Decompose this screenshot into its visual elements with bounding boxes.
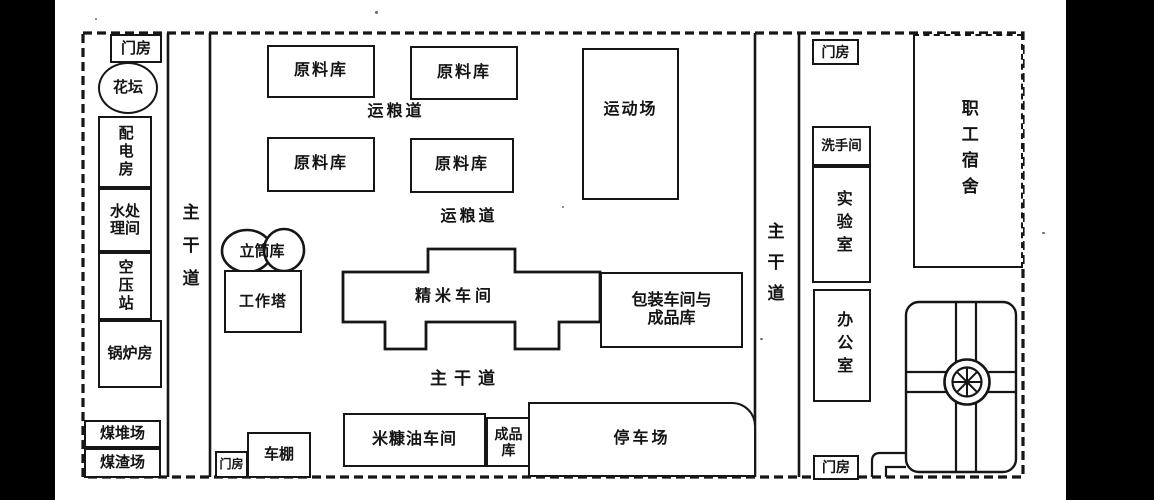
sports-field-label: 运动场: [603, 101, 657, 119]
sports-field: 运动场: [582, 48, 679, 200]
boiler-room-label: 锅炉房: [107, 345, 152, 362]
water-treatment-room: 水处理间: [98, 188, 152, 252]
gatehouse-northwest-label: 门房: [121, 40, 151, 57]
parking-lot-label: 停车场: [613, 430, 670, 448]
scan-speck: [760, 338, 763, 340]
scan-speck: [1042, 232, 1045, 234]
gatehouse-southeast: 门房: [813, 455, 859, 480]
raw-material-warehouse-nw-label: 原料库: [294, 62, 348, 80]
garden-elbow-outer: [872, 453, 906, 477]
main-road-east-label: 主干道: [764, 222, 784, 315]
gatehouse-northeast: 门房: [812, 39, 859, 65]
bike-shed: 车棚: [247, 432, 311, 478]
main-road-center-label: 主干道: [418, 369, 514, 389]
raw-material-warehouse-nw: 原料库: [267, 45, 375, 98]
raw-material-warehouse-ne-label: 原料库: [437, 64, 491, 82]
air-compressor-station-label: 空压站: [116, 259, 133, 313]
washroom: 洗手间: [812, 126, 871, 166]
water-treatment-room-label: 水处理间: [107, 203, 143, 238]
packaging-and-finished-goods-label: 包装车间与成品库: [626, 292, 718, 329]
staff-dormitory-label: 职工宿舍: [958, 99, 978, 203]
power-distribution-room: 配电房: [98, 116, 152, 188]
raw-material-warehouse-sw: 原料库: [267, 137, 375, 192]
finished-goods-warehouse: 成品库: [486, 417, 531, 467]
packaging-and-finished-goods: 包装车间与成品库: [600, 272, 743, 348]
rice-bran-oil-workshop: 米糠油车间: [343, 413, 486, 467]
staff-dormitory: 职工宿舍: [913, 34, 1023, 268]
main-road-west-label: 主干道: [179, 203, 199, 302]
scan-speck: [375, 11, 378, 14]
laboratory: 实验室: [812, 166, 871, 283]
scan-speck: [562, 206, 564, 208]
parking-lot: 停车场: [528, 402, 756, 477]
bike-shed-label: 车棚: [264, 446, 294, 463]
grain-road-upper-label: 运粮道: [352, 103, 440, 121]
raw-material-warehouse-se: 原料库: [410, 138, 514, 193]
rice-bran-oil-workshop-label: 米糠油车间: [372, 431, 457, 449]
gatehouse-south-center: 门房: [215, 451, 248, 478]
work-tower: 工作塔: [224, 270, 302, 333]
office-label: 办公室: [833, 311, 851, 380]
air-compressor-station: 空压站: [98, 252, 152, 320]
finished-goods-warehouse-label: 成品库: [494, 426, 524, 458]
silo-label: 立筒库: [228, 243, 296, 260]
laboratory-label: 实验室: [832, 190, 850, 259]
raw-material-warehouse-sw-label: 原料库: [294, 155, 348, 173]
coal-pile-yard-label: 煤堆场: [100, 425, 145, 442]
scan-speck: [95, 18, 97, 20]
gatehouse-northeast-label: 门房: [822, 44, 850, 60]
gatehouse-southeast-label: 门房: [822, 459, 850, 475]
coal-pile-yard: 煤堆场: [84, 420, 161, 448]
flower-bed-label: 花坛: [113, 79, 143, 96]
fountain-hub: [964, 379, 969, 384]
coal-cinder-yard: 煤渣场: [84, 448, 161, 478]
coal-cinder-yard-label: 煤渣场: [100, 454, 145, 471]
flower-bed: 花坛: [98, 62, 158, 114]
raw-material-warehouse-se-label: 原料库: [435, 156, 489, 174]
office: 办公室: [813, 289, 871, 402]
rice-milling-workshop-label: 精米车间: [392, 288, 518, 306]
gatehouse-northwest: 门房: [110, 34, 162, 63]
power-distribution-room-label: 配电房: [116, 125, 133, 179]
raw-material-warehouse-ne: 原料库: [410, 46, 518, 100]
washroom-label: 洗手间: [821, 138, 862, 154]
factory-site-plan: 门房 花坛 配电房 水处理间 空压站 锅炉房 煤堆场 煤渣场 主干道 主干道 运…: [0, 0, 1154, 500]
work-tower-label: 工作塔: [239, 293, 287, 310]
grain-road-lower-label: 运粮道: [425, 208, 513, 226]
boiler-room: 锅炉房: [98, 320, 162, 388]
gatehouse-south-center-label: 门房: [219, 458, 243, 472]
